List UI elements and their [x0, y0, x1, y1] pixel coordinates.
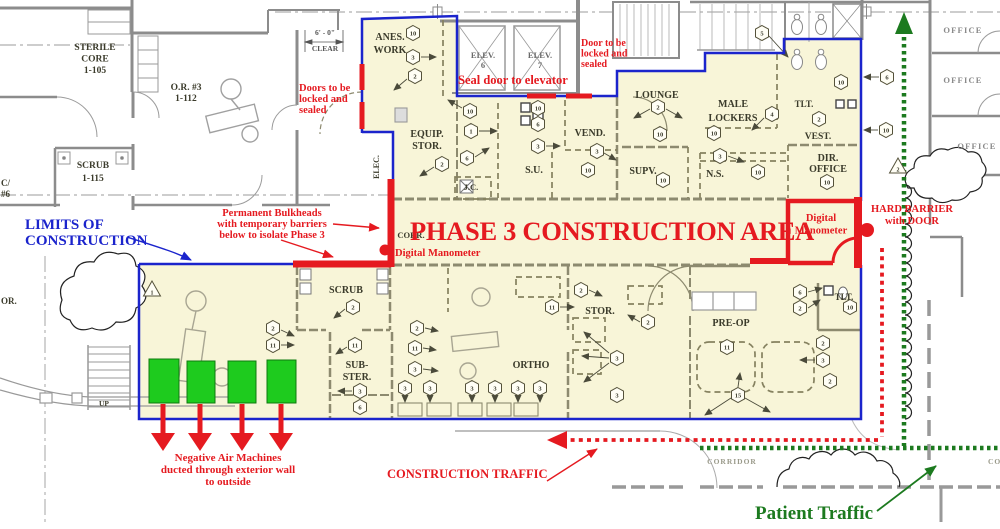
keynote-hex-2: 2: [794, 301, 807, 316]
keynote-hex-3: 3: [466, 381, 479, 396]
keynote-hex-3: 3: [399, 381, 412, 396]
jc: J.C.: [464, 182, 479, 192]
keynote-hex-3: 3: [409, 362, 422, 377]
ortho: ORTHO: [513, 360, 550, 371]
svg-text:11: 11: [412, 345, 418, 352]
svg-text:10: 10: [883, 127, 890, 134]
note-construction-traffic: CONSTRUCTION TRAFFIC: [387, 467, 548, 481]
keynote-hex-11: 11: [721, 340, 734, 355]
svg-text:2: 2: [646, 319, 649, 326]
keynote-hex-10: 10: [407, 26, 420, 41]
svg-text:15: 15: [735, 392, 742, 399]
svg-text:10: 10: [711, 130, 718, 137]
keynote-hex-10: 10: [532, 101, 545, 116]
svg-text:10: 10: [467, 108, 474, 115]
svg-text:2: 2: [656, 104, 659, 111]
svg-text:10: 10: [410, 30, 417, 37]
svg-text:11: 11: [724, 344, 730, 351]
negative-air-machine: [149, 359, 179, 403]
floor-plan-canvas: STERILECORE1-105O.R. #31-112SCRUB1-115C/…: [0, 0, 1000, 529]
keynote-hex-2: 2: [652, 100, 665, 115]
svg-text:2: 2: [351, 304, 354, 311]
keynote-hex-6: 6: [532, 117, 545, 132]
corridor-2: CORRIDOR: [988, 457, 1000, 466]
keynote-hex-3: 3: [532, 139, 545, 154]
keynote-hex-2: 2: [642, 315, 655, 330]
keynote-hex-2: 2: [436, 157, 449, 172]
keynote-hex-2: 2: [409, 69, 422, 84]
svg-text:11: 11: [270, 342, 276, 349]
scrub-lower: SCRUB: [329, 285, 363, 296]
keynote-hex-4: 4: [766, 107, 779, 122]
svg-text:2: 2: [897, 168, 900, 174]
svg-text:10: 10: [660, 177, 667, 184]
svg-text:2: 2: [413, 73, 416, 80]
keynote-hex-15: 15: [732, 388, 745, 403]
keynote-hex-5: 5: [756, 26, 769, 41]
keynote-hex-10: 10: [464, 104, 477, 119]
keynote-hex-3: 3: [407, 50, 420, 65]
keynote-hex-10: 10: [654, 127, 667, 142]
office-1: OFFICE: [943, 25, 982, 35]
construction-plan-svg: STERILECORE1-105O.R. #31-112SCRUB1-115C/…: [0, 0, 1000, 529]
svg-text:10: 10: [755, 169, 762, 176]
keynote-hex-10: 10: [657, 173, 670, 188]
negative-air-machine: [267, 360, 296, 403]
keynote-hex-10: 10: [835, 75, 848, 90]
corridor-1: CORRIDOR: [707, 457, 757, 466]
svg-text:10: 10: [838, 79, 845, 86]
lounge: LOUNGE: [635, 90, 679, 101]
elec: ELEC.: [372, 155, 381, 179]
keynote-hex-3: 3: [591, 144, 604, 159]
svg-text:2: 2: [798, 305, 801, 312]
keynote-hex-3: 3: [534, 381, 547, 396]
keynote-hex-6: 6: [881, 70, 894, 85]
or-partial: OR.: [1, 296, 17, 306]
note-digital-manometer-1: Digital Manometer: [395, 248, 481, 259]
keynote-hex-3: 3: [611, 388, 624, 403]
office-3: OFFICE: [957, 141, 996, 151]
keynote-hex-2: 2: [575, 283, 588, 298]
supv: SUPV.: [629, 166, 657, 177]
keynote-hex-6: 6: [354, 400, 367, 415]
note-seal-door-elevator: Seal door to elevator: [458, 73, 568, 87]
sub-ster: SUB-STER.: [343, 360, 372, 383]
svg-text:2: 2: [579, 287, 582, 294]
keynote-hex-10: 10: [582, 163, 595, 178]
c6-partial: C/#6: [1, 178, 11, 199]
keynote-hex-11: 11: [267, 338, 280, 353]
keynote-hex-11: 11: [349, 338, 362, 353]
svg-text:1: 1: [469, 128, 472, 135]
up: UP: [99, 399, 109, 408]
svg-text:10: 10: [847, 304, 854, 311]
svg-text:10: 10: [657, 131, 664, 138]
svg-text:10: 10: [535, 105, 542, 112]
svg-text:1: 1: [151, 291, 154, 297]
keynote-hex-2: 2: [813, 112, 826, 127]
keynote-hex-2: 2: [267, 321, 280, 336]
keynote-hex-11: 11: [546, 300, 559, 315]
keynote-hex-2: 2: [824, 374, 837, 389]
keynote-hex-3: 3: [489, 381, 502, 396]
svg-text:11: 11: [549, 304, 555, 311]
svg-text:2: 2: [440, 161, 443, 168]
office-2: OFFICE: [943, 75, 982, 85]
keynote-hex-10: 10: [708, 126, 721, 141]
keynote-hex-3: 3: [714, 149, 727, 164]
note-permanent-bulkheads: Permanent Bulkheadswith temporary barrie…: [217, 208, 327, 241]
equip-stor: EQUIP.STOR.: [410, 129, 444, 152]
keynote-hex-10: 10: [821, 175, 834, 190]
keynote-hex-6: 6: [461, 151, 474, 166]
keynote-hex-10: 10: [880, 123, 893, 138]
note-patient-traffic: Patient Traffic: [755, 503, 873, 524]
svg-text:2: 2: [821, 340, 824, 347]
note-phase3-title: PHASE 3 CONSTRUCTION AREA: [410, 216, 814, 246]
pre-op: PRE-OP: [712, 318, 749, 329]
negative-air-machine: [187, 361, 215, 403]
vest: VEST.: [805, 132, 832, 142]
keynote-hex-10: 10: [844, 300, 857, 315]
keynote-hex-3: 3: [354, 384, 367, 399]
svg-text:11: 11: [352, 342, 358, 349]
svg-text:2: 2: [415, 325, 418, 332]
keynote-hex-11: 11: [409, 341, 422, 356]
tlt-upper: TLT.: [795, 99, 814, 109]
stor-lower: STOR.: [585, 306, 615, 317]
keynote-hex-2: 2: [817, 336, 830, 351]
keynote-hex-3: 3: [817, 353, 830, 368]
svg-text:2: 2: [817, 116, 820, 123]
keynote-hex-3: 3: [611, 351, 624, 366]
keynote-hex-2: 2: [411, 321, 424, 336]
keynote-hex-3: 3: [512, 381, 525, 396]
svg-text:10: 10: [824, 179, 831, 186]
keynote-hex-3: 3: [424, 381, 437, 396]
svg-text:10: 10: [585, 167, 592, 174]
su: S.U.: [525, 165, 543, 176]
svg-text:2: 2: [271, 325, 274, 332]
vend: VEND.: [575, 128, 606, 139]
negative-air-machine: [228, 361, 256, 403]
keynote-hex-6: 6: [794, 285, 807, 300]
svg-text:2: 2: [828, 378, 831, 385]
keynote-hex-1: 1: [465, 124, 478, 139]
ns: N.S.: [706, 169, 724, 180]
keynote-hex-2: 2: [347, 300, 360, 315]
keynote-hex-10: 10: [752, 165, 765, 180]
